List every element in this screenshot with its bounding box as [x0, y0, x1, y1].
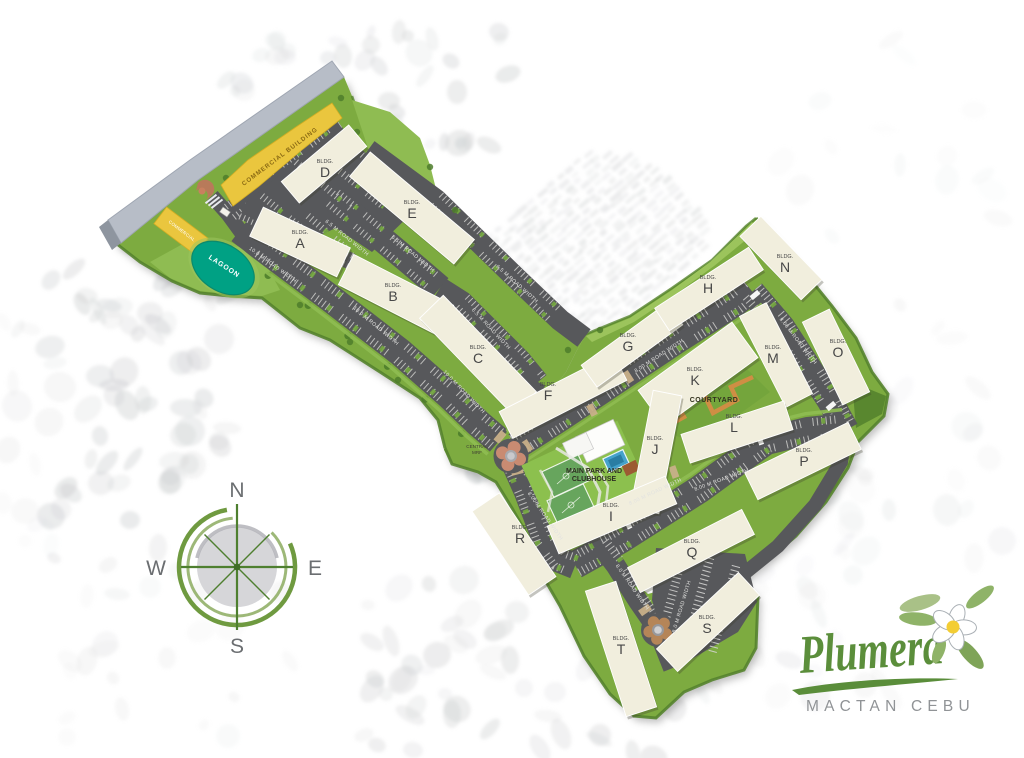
svg-text:J: J [652, 441, 659, 457]
svg-text:R: R [515, 530, 525, 546]
svg-text:CENTRAL: CENTRAL [466, 444, 488, 449]
svg-text:COURTYARD: COURTYARD [690, 397, 739, 404]
svg-text:B: B [388, 288, 397, 304]
svg-text:A: A [295, 235, 305, 251]
svg-text:S: S [702, 620, 711, 636]
svg-text:Q: Q [687, 544, 698, 560]
svg-text:O: O [833, 344, 844, 360]
svg-text:MACTAN CEBU: MACTAN CEBU [806, 698, 975, 715]
svg-text:G: G [623, 338, 634, 354]
svg-text:S: S [230, 635, 244, 658]
svg-text:D: D [320, 164, 330, 180]
svg-text:CLUBHOUSE: CLUBHOUSE [572, 476, 617, 483]
svg-text:E: E [407, 205, 416, 221]
svg-text:P: P [799, 453, 808, 469]
svg-text:W: W [146, 557, 166, 580]
svg-text:C: C [473, 350, 483, 366]
svg-text:E: E [308, 557, 322, 580]
svg-text:M: M [767, 350, 779, 366]
svg-text:MRF: MRF [472, 450, 482, 455]
svg-text:H: H [703, 280, 713, 296]
svg-text:T: T [617, 641, 626, 657]
svg-text:Plumera: Plumera [796, 615, 945, 685]
svg-text:N: N [229, 479, 244, 502]
svg-text:L: L [730, 419, 738, 435]
svg-text:N: N [780, 259, 790, 275]
svg-text:F: F [544, 387, 553, 403]
svg-text:MAIN PARK AND: MAIN PARK AND [566, 468, 622, 475]
svg-text:I: I [609, 508, 613, 524]
svg-text:K: K [690, 372, 700, 388]
